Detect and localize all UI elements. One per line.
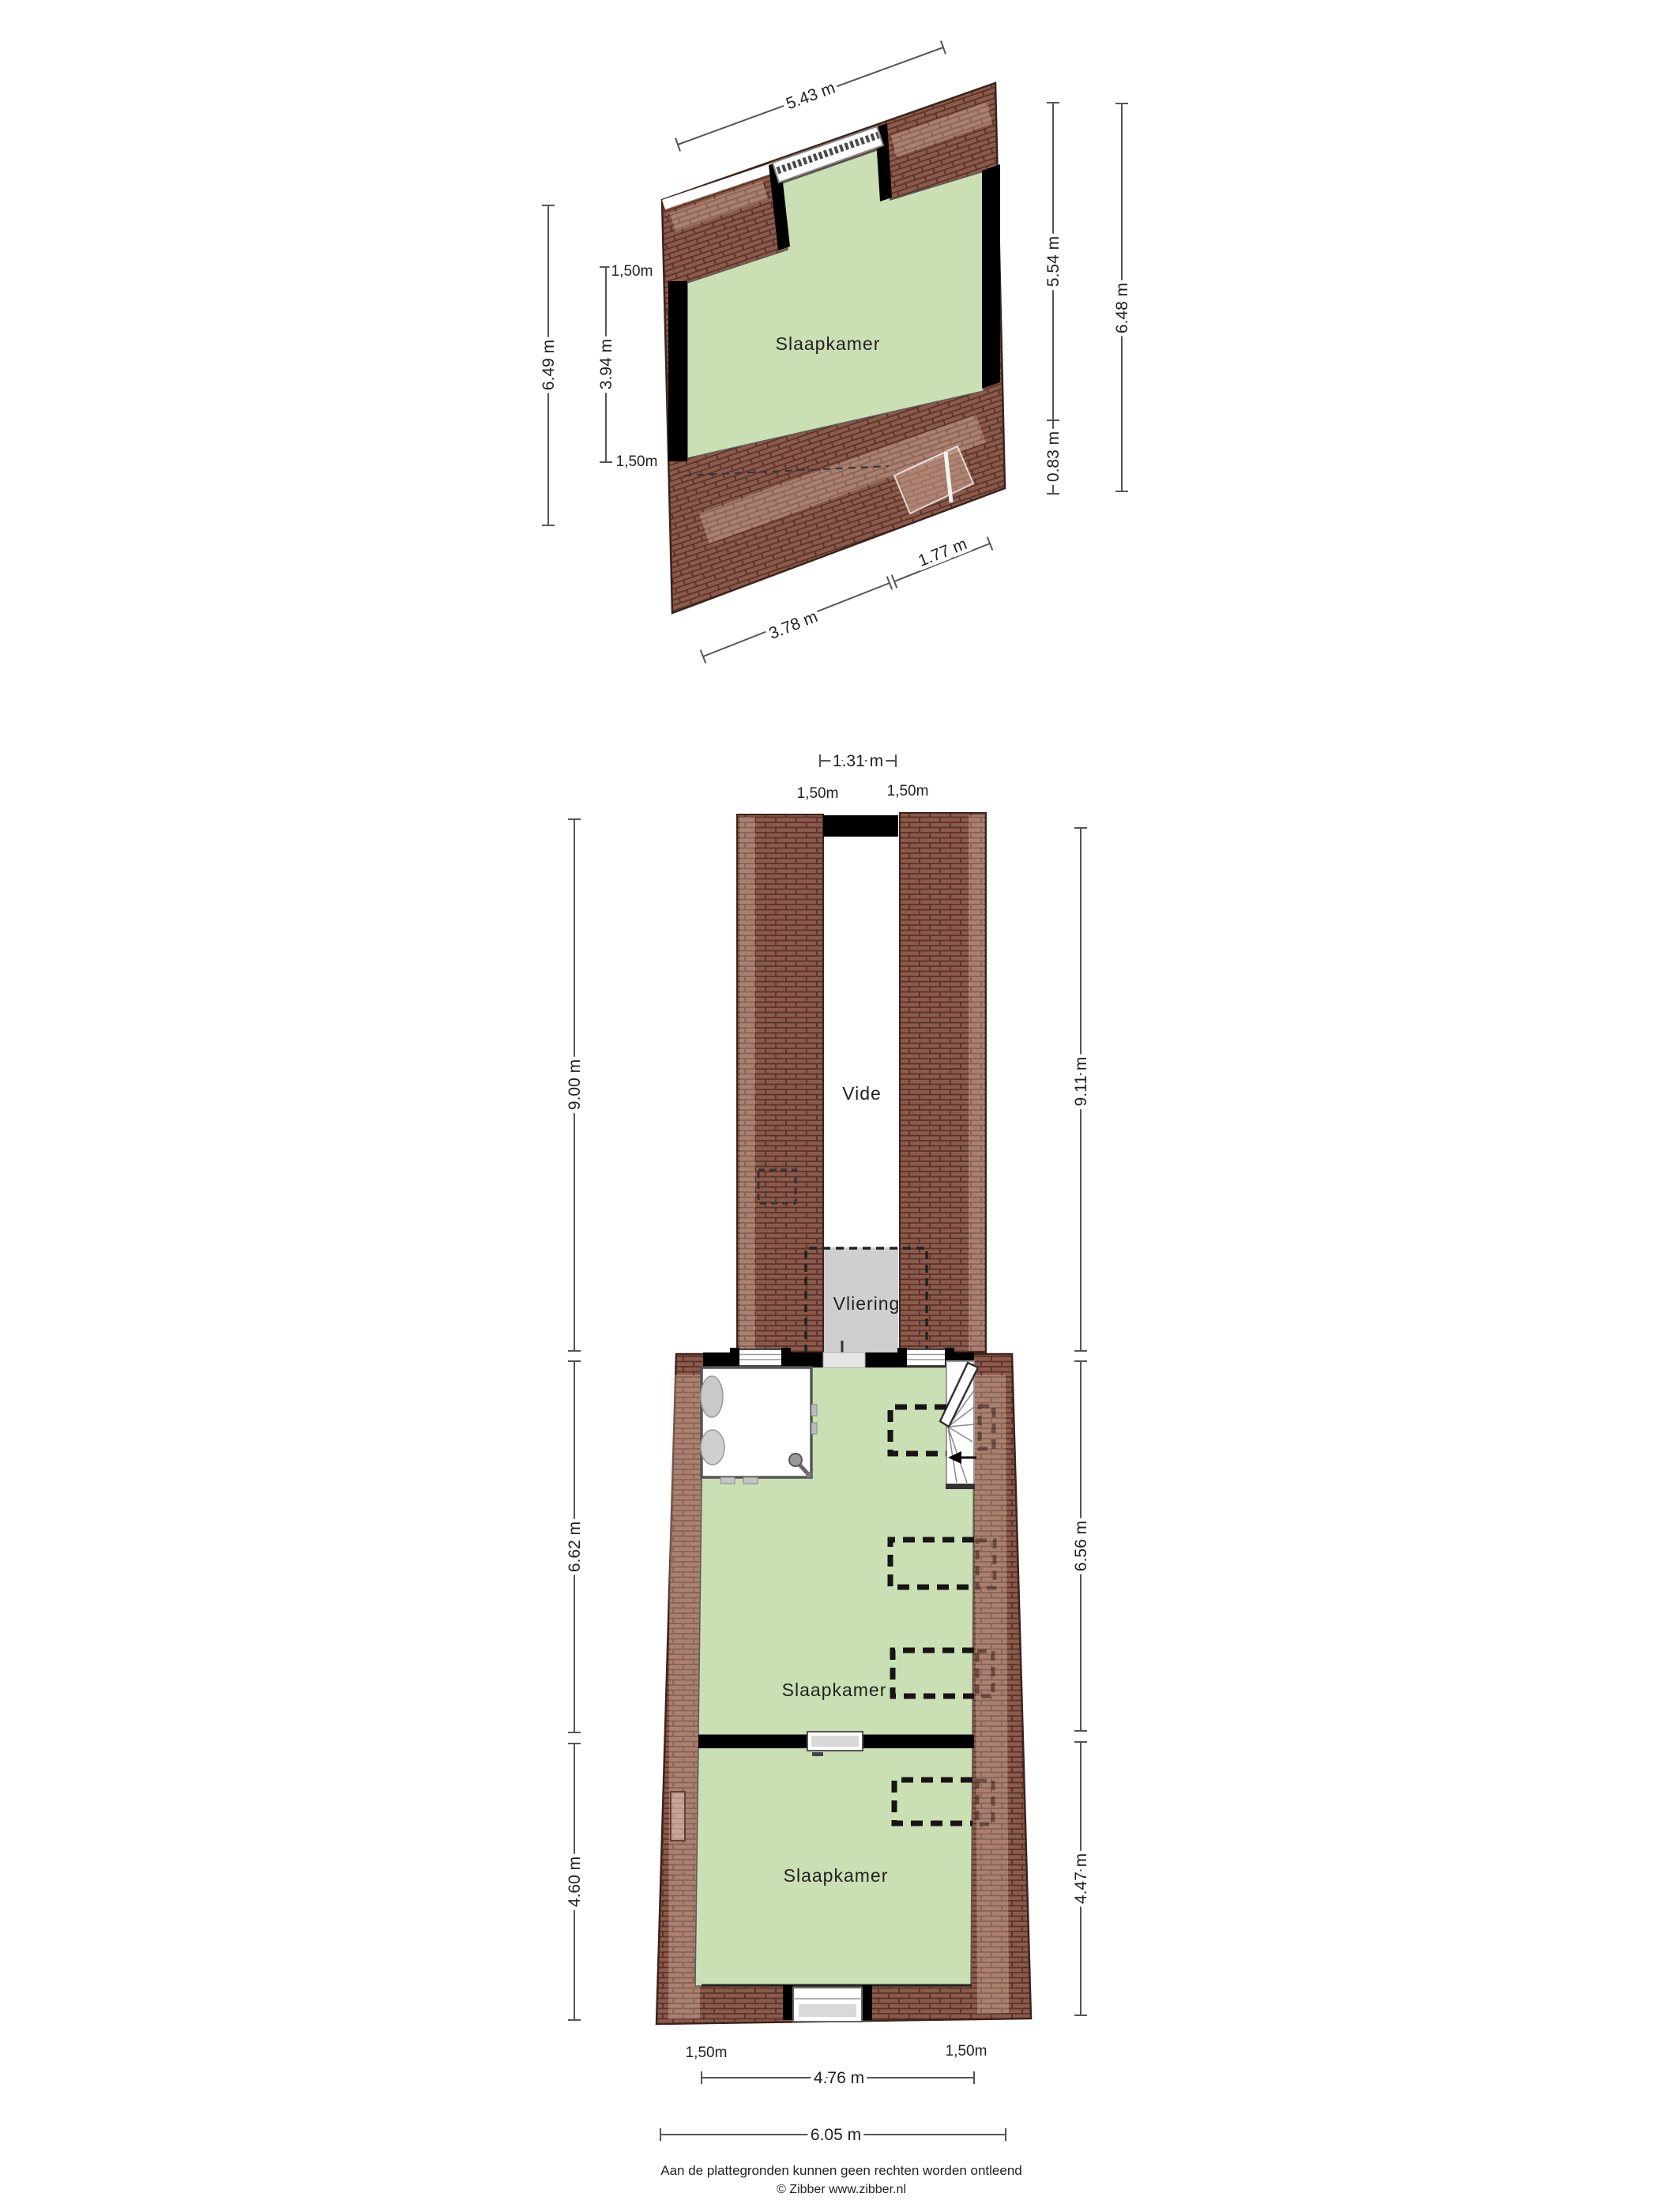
- shower-tab-2: [743, 1477, 758, 1484]
- shower-fixture-lower: [701, 1430, 724, 1465]
- second-dim-bottom-inner-label: 4.76 m: [814, 2069, 864, 2087]
- second-knee-top-right-label: 1,50m: [887, 783, 929, 799]
- floor-plan-attic: 5.43 m 6.49 m 3.94 m 1,50m 1,50m 5.54 m …: [540, 41, 1131, 664]
- attic-dim-right-inner: 5.54 m 0.83 m: [1044, 103, 1063, 494]
- attic-dim-left-outer-label: 6.49 m: [540, 340, 558, 390]
- second-dim-bottom: 1,50m 1,50m 4.76 m 6.05 m: [660, 2043, 1006, 2144]
- vide-label: Vide: [842, 1083, 882, 1104]
- floor-plan-second: Vide Vliering Slaapkamer Slaapkamer 1.31…: [566, 752, 1090, 2144]
- attic-dim-right-outer-label: 6.48 m: [1113, 283, 1131, 333]
- attic-dim-right-bottom-label: 0.83 m: [1044, 431, 1063, 482]
- attic-dim-right-top-label: 5.54 m: [1044, 236, 1063, 287]
- attic-dim-right-outer: 6.48 m: [1113, 103, 1131, 491]
- room-mid-label: Slaapkamer: [782, 1680, 887, 1700]
- second-knee-bottom-left-label: 1,50m: [686, 2045, 728, 2061]
- attic-wall-right: [982, 164, 1000, 389]
- second-dim-left-top-label: 9.00 m: [566, 1059, 584, 1110]
- vide-roof-right-highlight: [969, 815, 984, 1351]
- second-dim-right: 9.11 m 6.56 m 4.47 m: [1072, 828, 1090, 2015]
- second-roof-chimney: [671, 1792, 685, 1841]
- shower-cabin: [701, 1367, 817, 1484]
- vide-roof-left-highlight: [739, 817, 755, 1351]
- attic-knee-left-top-label: 1,50m: [611, 263, 653, 280]
- second-knee-bottom-right-label: 1,50m: [946, 2043, 987, 2060]
- attic-dim-left-inner-label: 3.94 m: [597, 339, 615, 389]
- attic-knee-left-bottom-label: 1,50m: [616, 453, 658, 470]
- floorplan-document: { "colors": { "room_green": "#cbdfb4", "…: [0, 0, 1659, 2212]
- attic-dim-left-outer: 6.49 m: [540, 205, 558, 525]
- shower-hinge-1: [811, 1405, 817, 1416]
- attic-dim-bottom-left-label: 3.78 m: [766, 608, 820, 643]
- dividing-wall-tick: [812, 1752, 823, 1756]
- attic-dim-left-inner: 3.94 m 1,50m 1,50m: [597, 263, 657, 470]
- attic-wall-left: [668, 281, 687, 461]
- second-roof-highlight-right: [974, 1375, 1009, 2014]
- attic-room-label: Slaapkamer: [776, 333, 881, 354]
- floorplan-canvas: 5.43 m 6.49 m 3.94 m 1,50m 1,50m 5.54 m …: [0, 0, 1659, 2212]
- second-dim-left: 9.00 m 6.62 m 4.60 m: [566, 819, 584, 2020]
- second-knee-top-left-label: 1,50m: [797, 785, 839, 802]
- vide-top-wall: [823, 815, 898, 837]
- shower-fixture-upper: [701, 1376, 723, 1417]
- second-dim-top: 1.31 m 1,50m 1,50m: [797, 752, 929, 802]
- second-dim-top-label: 1.31 m: [833, 752, 883, 770]
- second-dim-right-mid-label: 6.56 m: [1072, 1521, 1090, 1571]
- floorplan-page: 5.43 m 6.49 m 3.94 m 1,50m 1,50m 5.54 m …: [0, 0, 1659, 2212]
- vliering-label: Vliering: [833, 1293, 901, 1314]
- stair-bottom-edge: [946, 1484, 975, 1489]
- second-dim-left-bottom-label: 4.60 m: [566, 1856, 584, 1907]
- attic-dim-bottom-right-label: 1.77 m: [916, 535, 969, 570]
- footer-copyright: © Zibber www.zibber.nl: [777, 2183, 906, 2196]
- staircase: [940, 1361, 978, 1489]
- second-dim-left-mid-label: 6.62 m: [566, 1522, 584, 1572]
- room-low-label: Slaapkamer: [784, 1865, 889, 1886]
- shower-hinge-2: [811, 1423, 817, 1434]
- footer-disclaimer: Aan de plattegronden kunnen geen rechten…: [660, 2163, 1021, 2178]
- second-top-wall-gap: [823, 1352, 865, 1367]
- second-dim-right-top-label: 9.11 m: [1072, 1057, 1090, 1107]
- second-dim-bottom-outer-label: 6.05 m: [811, 2126, 861, 2144]
- window-top-left: [730, 1348, 791, 1367]
- footer: Aan de plattegronden kunnen geen rechten…: [660, 2163, 1021, 2196]
- attic-dim-top-label: 5.43 m: [784, 79, 837, 114]
- shower-tab-1: [720, 1477, 735, 1484]
- second-dim-right-bottom-label: 4.47 m: [1072, 1853, 1090, 1904]
